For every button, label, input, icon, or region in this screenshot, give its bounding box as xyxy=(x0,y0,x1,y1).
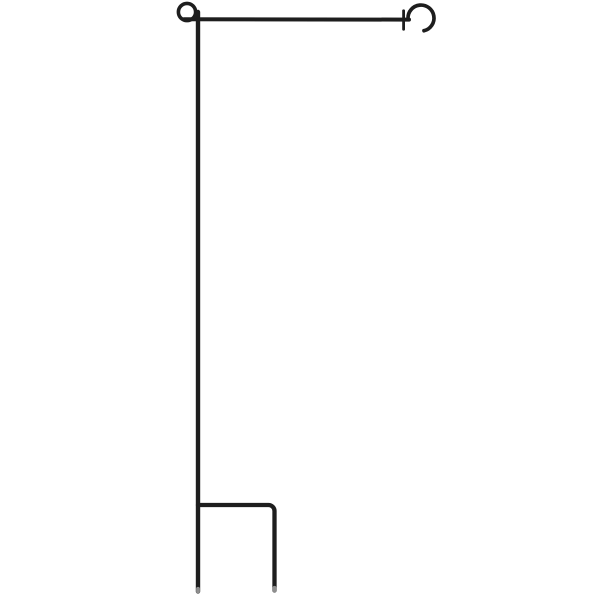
garden-flag-stand-photo xyxy=(0,0,600,600)
flag-stand-illustration xyxy=(0,0,600,600)
photo-background xyxy=(0,0,600,600)
